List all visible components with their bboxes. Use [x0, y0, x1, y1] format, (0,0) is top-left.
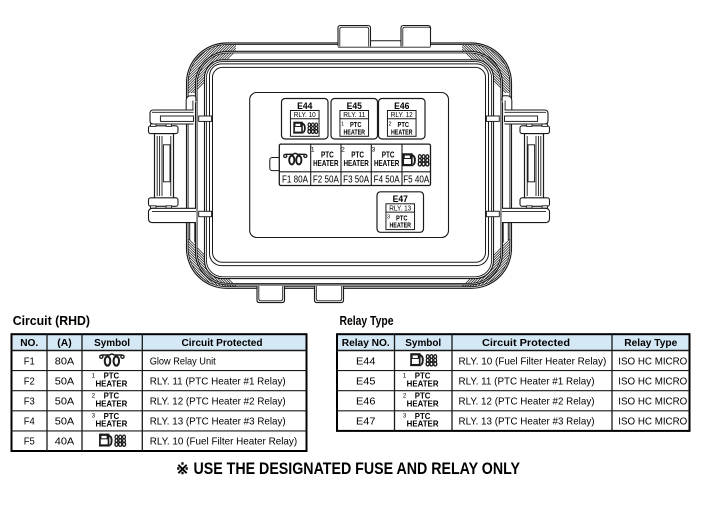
svg-text:ISO HC MICRO: ISO HC MICRO: [618, 417, 687, 428]
svg-text:Circuit Protected: Circuit Protected: [182, 338, 263, 349]
svg-text:※: ※: [176, 461, 189, 478]
svg-text:NO.: NO.: [20, 338, 38, 349]
svg-text:RLY. 10 (Fuel Filter Heater Re: RLY. 10 (Fuel Filter Heater Relay): [459, 356, 607, 367]
svg-text:PTC: PTC: [398, 122, 409, 129]
svg-text:F5: F5: [24, 437, 35, 448]
svg-text:F1: F1: [24, 356, 35, 367]
svg-text:Symbol: Symbol: [94, 338, 130, 349]
svg-text:HEATER: HEATER: [407, 379, 439, 388]
svg-text:3: 3: [372, 147, 376, 154]
svg-text:Symbol: Symbol: [405, 338, 441, 349]
svg-text:ISO HC MICRO: ISO HC MICRO: [618, 396, 687, 407]
svg-text:E46: E46: [394, 100, 409, 111]
svg-text:(A): (A): [57, 338, 71, 349]
svg-text:E44: E44: [297, 100, 313, 111]
svg-text:1: 1: [311, 147, 315, 154]
svg-text:HEATER: HEATER: [313, 158, 338, 168]
svg-text:Relay NO.: Relay NO.: [342, 338, 390, 349]
svg-text:RLY. 13 (PTC Heater #3 Relay): RLY. 13 (PTC Heater #3 Relay): [459, 417, 595, 428]
svg-text:40A: 40A: [55, 437, 75, 448]
svg-text:2: 2: [388, 121, 391, 127]
svg-text:RLY. 12: RLY. 12: [391, 112, 413, 119]
svg-text:RLY. 11: RLY. 11: [343, 112, 365, 119]
svg-text:RLY. 10 (Fuel Filter Heater Re: RLY. 10 (Fuel Filter Heater Relay): [150, 437, 298, 448]
svg-text:Relay Type: Relay Type: [624, 338, 677, 349]
svg-text:HEATER: HEATER: [389, 223, 411, 230]
svg-text:RLY. 10: RLY. 10: [294, 112, 316, 119]
svg-text:Circuit (RHD): Circuit (RHD): [13, 313, 90, 328]
svg-text:50A: 50A: [55, 376, 75, 387]
svg-text:HEATER: HEATER: [374, 158, 399, 168]
svg-text:F3: F3: [24, 396, 35, 407]
svg-text:HEATER: HEATER: [343, 158, 368, 168]
svg-text:Circuit Protected: Circuit Protected: [482, 338, 570, 349]
svg-text:RLY. 12 (PTC Heater #2 Relay): RLY. 12 (PTC Heater #2 Relay): [459, 396, 595, 407]
svg-text:F5 40A: F5 40A: [403, 174, 429, 185]
svg-text:1: 1: [341, 121, 344, 127]
svg-text:Relay Type: Relay Type: [340, 313, 394, 328]
svg-text:E47: E47: [393, 193, 408, 204]
svg-text:RLY. 13 (PTC Heater #3 Relay): RLY. 13 (PTC Heater #3 Relay): [150, 417, 286, 428]
svg-text:HEATER: HEATER: [391, 129, 413, 136]
svg-text:2: 2: [341, 147, 345, 154]
svg-text:RLY. 13: RLY. 13: [389, 205, 411, 212]
svg-text:3: 3: [387, 215, 390, 221]
svg-text:F4: F4: [24, 417, 35, 428]
svg-text:E44: E44: [356, 356, 376, 367]
svg-text:Glow Relay Unit: Glow Relay Unit: [150, 356, 216, 367]
svg-text:HEATER: HEATER: [407, 420, 439, 429]
svg-text:E46: E46: [356, 396, 376, 407]
svg-text:HEATER: HEATER: [95, 379, 127, 388]
svg-text:ISO HC MICRO: ISO HC MICRO: [618, 376, 687, 387]
svg-text:F3 50A: F3 50A: [343, 174, 369, 185]
svg-text:80A: 80A: [55, 356, 75, 367]
svg-text:ISO HC MICRO: ISO HC MICRO: [618, 356, 687, 367]
svg-text:PTC: PTC: [396, 215, 407, 222]
svg-text:E45: E45: [356, 376, 376, 387]
svg-text:E45: E45: [347, 100, 362, 111]
svg-text:HEATER: HEATER: [343, 129, 365, 136]
svg-text:50A: 50A: [55, 417, 75, 428]
svg-text:F2: F2: [24, 376, 35, 387]
svg-text:50A: 50A: [55, 396, 75, 407]
svg-text:RLY. 12 (PTC Heater #2 Relay): RLY. 12 (PTC Heater #2 Relay): [150, 396, 286, 407]
svg-text:E47: E47: [356, 417, 376, 428]
svg-text:USE THE DESIGNATED FUSE AND RE: USE THE DESIGNATED FUSE AND RELAY ONLY: [194, 460, 521, 478]
svg-text:RLY. 11 (PTC Heater #1 Relay): RLY. 11 (PTC Heater #1 Relay): [459, 376, 595, 387]
svg-text:RLY. 11 (PTC Heater #1 Relay): RLY. 11 (PTC Heater #1 Relay): [150, 376, 286, 387]
svg-text:F2 50A: F2 50A: [313, 174, 339, 185]
svg-text:F4 50A: F4 50A: [374, 174, 400, 185]
svg-text:PTC: PTC: [350, 122, 361, 129]
svg-text:F1 80A: F1 80A: [282, 174, 308, 185]
svg-text:HEATER: HEATER: [95, 420, 127, 429]
svg-text:HEATER: HEATER: [407, 399, 439, 408]
svg-text:HEATER: HEATER: [95, 399, 127, 408]
